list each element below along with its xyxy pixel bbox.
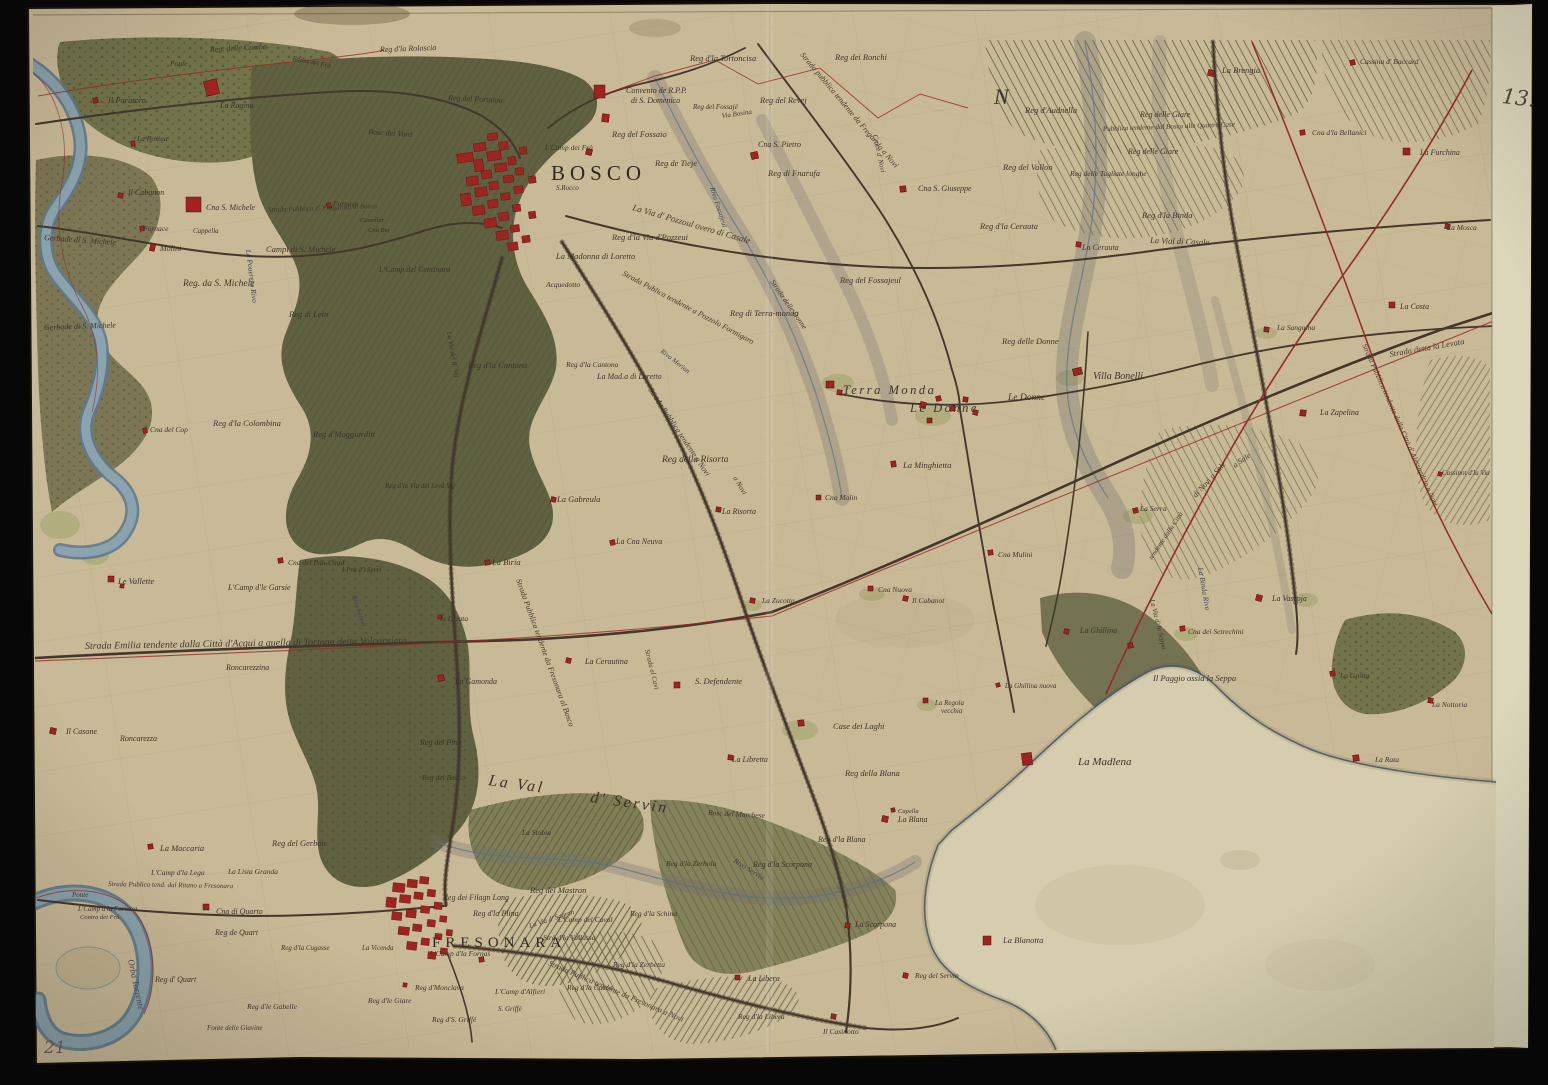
map-label: Terra Monda bbox=[843, 383, 936, 397]
map-label: L'Camp d'la Fornas bbox=[429, 949, 490, 958]
map-label: BOSCO bbox=[551, 161, 646, 185]
map-label: di S. Domenico bbox=[631, 96, 680, 105]
map-label: Reg de Tieje bbox=[654, 158, 697, 168]
map-label: Reg di Lein bbox=[288, 309, 328, 319]
map-label: Reg d'la Scorpona bbox=[752, 860, 812, 869]
map-label: Reg d'Monclava bbox=[414, 983, 464, 992]
map-label: Reg d'la Blana bbox=[817, 835, 865, 844]
map-label: La Biria bbox=[491, 557, 521, 567]
map-label: Campi di S. Michele bbox=[266, 244, 336, 254]
map-label: La Ragina bbox=[219, 101, 254, 110]
map-label: Ponte bbox=[71, 891, 88, 899]
map-label: Cappella bbox=[193, 227, 219, 235]
map-label: Reg del Fossaio bbox=[611, 129, 667, 139]
map-label: La Ghillina nuova bbox=[1004, 682, 1057, 690]
map-label: Castellar bbox=[360, 217, 385, 224]
map-label: Reg dei Filagn Long bbox=[442, 893, 509, 902]
map-label: L'Camp dei Frà bbox=[544, 143, 593, 152]
map-label: La Risorta bbox=[721, 507, 756, 516]
map-label: La Vicenda bbox=[361, 944, 394, 952]
map-label: I Prà d'i Servi bbox=[341, 566, 381, 574]
map-label: Contra dei Frà bbox=[80, 914, 119, 921]
map-label: La Zucotta bbox=[761, 596, 795, 605]
map-label: Le Vallette bbox=[117, 576, 154, 586]
map-label: N bbox=[993, 84, 1011, 109]
map-label: L'Camp d'la Fornera bbox=[77, 905, 138, 913]
map-label: Cna d'la Bellanici bbox=[1312, 128, 1367, 137]
sheet-number-bottom-left: 21 bbox=[44, 1038, 66, 1058]
map-label: Case dei Laghi bbox=[833, 721, 885, 731]
map-label: Reg del Fossajeul bbox=[839, 275, 902, 285]
map-label: Reg del Pino bbox=[419, 738, 461, 747]
map-label: Il Paratore bbox=[107, 95, 146, 105]
map-label: La Lista Granda bbox=[227, 867, 278, 876]
map-label: Reg di Fnarufa bbox=[767, 168, 820, 178]
map-label: La Regola bbox=[934, 699, 964, 707]
map-canvas: Reg. delle CombeBadia dei FràPonteIl Par… bbox=[0, 0, 1548, 1085]
map-label: La Cna Neuva bbox=[615, 537, 662, 546]
map-label: L'Camp d'la Lega bbox=[150, 868, 205, 877]
map-label: Reg delle Tagliate longhe bbox=[1069, 169, 1147, 178]
map-label: La Vial di Casale bbox=[1149, 235, 1210, 247]
map-label: Reg d'le Giare bbox=[367, 996, 412, 1005]
map-label: La Madonna di Loretto bbox=[555, 251, 635, 261]
map-label: Acquedotto bbox=[545, 280, 580, 289]
map-label: La Costa bbox=[1399, 302, 1429, 311]
vignette bbox=[28, 4, 1532, 1064]
map-label: Reg d'Audnella bbox=[1024, 105, 1077, 115]
map-label: S.Rocco bbox=[556, 184, 579, 192]
map-label: Reg delle Giare bbox=[1127, 147, 1179, 156]
map-label: Reg del Revej bbox=[759, 95, 807, 105]
map-label: Reg delle Giare bbox=[1139, 110, 1191, 119]
map-label: La Minghietta bbox=[902, 460, 951, 470]
map-label: Reg del Gerbon bbox=[271, 838, 326, 848]
map-label: Reg. da S. Michele bbox=[182, 279, 255, 289]
map-label: Il Cabanot bbox=[911, 596, 945, 605]
map-label: Fonte delle Giavine bbox=[206, 1024, 263, 1032]
map-label: Reg d'S. Griffé bbox=[431, 1015, 477, 1024]
map-label: Reg d'la Colombina bbox=[212, 418, 281, 428]
map-label: Reg d'la Schina bbox=[629, 909, 677, 918]
map-label: Reg d'la Zerbetta bbox=[612, 960, 665, 969]
map-label: la Levata bbox=[440, 614, 468, 623]
map-label: Convento de R.P.P. bbox=[626, 86, 687, 95]
map-label: Cna dei Setrechini bbox=[1188, 627, 1244, 636]
map-label: Fornace bbox=[142, 224, 169, 233]
map-label: Reg del Vallon bbox=[1002, 162, 1053, 172]
map-label: Il Paggio ossia la Seppa bbox=[1152, 673, 1236, 683]
map-label: La Cerautina bbox=[584, 657, 628, 666]
map-label: L'Camp del Centinaro bbox=[378, 265, 450, 274]
map-label: La Mad.a di Loretto bbox=[596, 372, 662, 381]
map-label: Villa Bonelli bbox=[1093, 371, 1143, 382]
map-label: Reg delle Donne bbox=[1001, 336, 1059, 346]
map-label: Cna S. Michele bbox=[206, 203, 256, 212]
map-label: La Maccaria bbox=[159, 843, 204, 853]
map-label: Reg de Quart bbox=[214, 928, 259, 937]
map-label: La Madlena bbox=[1077, 756, 1132, 768]
map-label: La Sanguina bbox=[1276, 323, 1315, 332]
map-label: La Blana bbox=[897, 815, 928, 824]
map-label: Cassinot d'la Via bbox=[1442, 469, 1490, 477]
map-label: S. Griffé bbox=[498, 1005, 523, 1013]
map-label: vecchia bbox=[941, 707, 963, 715]
map-label: La Gamonda bbox=[454, 677, 497, 686]
map-label: La Gabreula bbox=[556, 494, 600, 504]
map-label: Le Donne bbox=[1007, 393, 1045, 403]
map-label: Cna Mulini bbox=[998, 550, 1032, 559]
scanned-map-page: Reg. delle CombeBadia dei FràPonteIl Par… bbox=[0, 0, 1548, 1085]
map-label: Reg della Blana bbox=[844, 768, 900, 778]
map-label: Cassina d' Baccard bbox=[1360, 57, 1419, 66]
map-label: La Scorpona bbox=[854, 920, 896, 929]
map-label: Cna S. Giuseppe bbox=[918, 184, 972, 193]
map-label: Il Cabanon bbox=[127, 188, 164, 197]
map-label: Cna di Quarto bbox=[216, 907, 263, 916]
map-label: L'Camp d'Alfieri bbox=[494, 987, 545, 996]
map-label: Reg d'la Tortoncisa bbox=[689, 53, 756, 63]
map-label: Reg del Mastron bbox=[529, 885, 586, 895]
map-label: Cna del Pan-Caud bbox=[288, 558, 344, 567]
sheet-number-top-right: 13. bbox=[1501, 84, 1537, 112]
map-label: La Serra bbox=[1139, 504, 1167, 513]
map-label: La Nottoria bbox=[1431, 700, 1467, 709]
map-label: Reg d'la Binda bbox=[1141, 210, 1192, 220]
map-label: La Brengia bbox=[1221, 65, 1260, 75]
map-label: Il Casinotto bbox=[822, 1027, 859, 1036]
map-label: Reg d'la Cerauta bbox=[979, 221, 1038, 231]
map-label: Cna Nuova bbox=[878, 585, 912, 594]
map-label: Reg d'la Cantona bbox=[467, 360, 527, 370]
map-label: La Cerauta bbox=[1081, 243, 1119, 252]
map-label: Reg d'la Libera bbox=[737, 1012, 785, 1021]
map-label: La Blanotta bbox=[1002, 935, 1043, 945]
map-label: Reg d'le Gabelle bbox=[246, 1002, 298, 1011]
map-label: Cna Molin bbox=[825, 493, 858, 502]
map-label: La Grotta bbox=[1339, 671, 1370, 680]
map-label: Reg d'la Via del Levà Vej bbox=[384, 482, 455, 490]
map-label: S. Defendente bbox=[695, 676, 742, 686]
map-label: Ponte bbox=[169, 59, 188, 68]
map-label: Roncarezza bbox=[119, 734, 157, 743]
map-label: Cna del Cop bbox=[150, 425, 188, 434]
map-label: Reg dei Ronchi bbox=[834, 52, 888, 62]
map-label: La Libera bbox=[747, 974, 780, 983]
map-label: Reg d' Quart bbox=[154, 975, 197, 984]
map-label: La Libretta bbox=[731, 755, 768, 764]
map-label: La Zapelina bbox=[1319, 408, 1359, 417]
map-label: Reg d'Moggiardin bbox=[312, 429, 375, 439]
map-label: Reg d'la Via d'Pozzeui bbox=[611, 232, 689, 242]
map-label: Cna S. Pietro bbox=[758, 140, 801, 149]
map-label: La Mosca bbox=[1446, 223, 1477, 232]
map-label: Capella bbox=[898, 808, 919, 815]
map-label: Il Casone bbox=[65, 727, 97, 736]
map-label: L'Camp d'le Garsie bbox=[227, 583, 291, 592]
map-label: Cna Bia bbox=[368, 227, 390, 234]
map-label: Reg d'la Plina bbox=[472, 909, 519, 918]
map-label: Reg del Servin bbox=[914, 971, 959, 980]
map-label: La Furchina bbox=[1419, 148, 1460, 157]
map-label: Roncarezzina bbox=[225, 663, 269, 672]
map-label: Strà d'la Vallassa bbox=[543, 933, 596, 942]
map-label: Le Donne bbox=[909, 401, 979, 415]
map-label: La Ghillina bbox=[1079, 626, 1117, 635]
map-label: La Rosina bbox=[136, 134, 168, 143]
map-label: Reg d'la Cugasse bbox=[280, 944, 330, 952]
map-label: Reg d'la Cantona bbox=[565, 360, 619, 369]
map-label: La Vassoja bbox=[1271, 594, 1307, 603]
map-label: La Stobia bbox=[521, 828, 551, 837]
map-label: Molini bbox=[159, 244, 181, 253]
map-label: La Rata bbox=[1374, 755, 1399, 764]
map-label: Reg d'la Zerbola bbox=[665, 859, 717, 868]
map-label: Reg di Terra-monda bbox=[729, 308, 799, 318]
map-label: Reg del Bosco bbox=[421, 773, 465, 782]
